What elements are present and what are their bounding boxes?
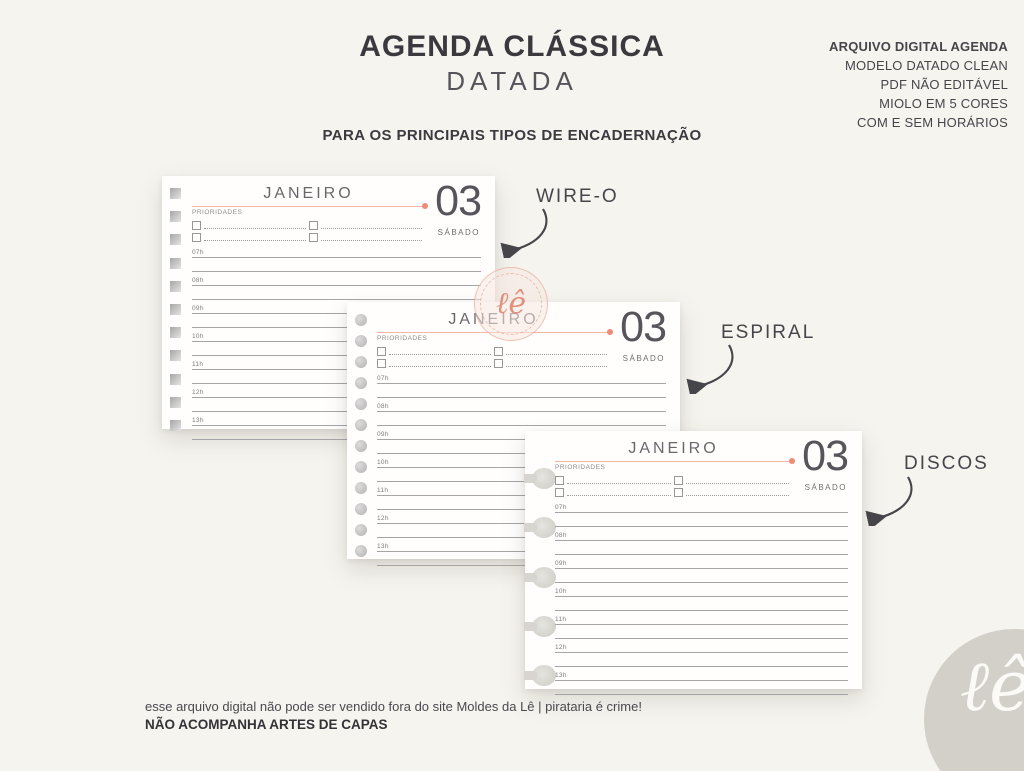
hour-line: 13h bbox=[555, 667, 848, 681]
hour-label: 12h bbox=[555, 644, 567, 651]
square-punch-hole-icon bbox=[170, 397, 181, 408]
square-punch-hole-icon bbox=[170, 211, 181, 222]
square-punch-hole-icon bbox=[170, 304, 181, 315]
disc-punch-hole-icon bbox=[532, 567, 556, 588]
circle-punch-hole-icon bbox=[355, 440, 367, 452]
info-lines: MODELO DATADO CLEANPDF NÃO EDITÁVELMIOLO… bbox=[829, 56, 1008, 132]
hour-block: 11h bbox=[555, 611, 848, 639]
dotted-leader bbox=[686, 482, 790, 484]
blank-line bbox=[555, 653, 848, 667]
priorities-row bbox=[192, 230, 425, 242]
hour-label: 10h bbox=[555, 588, 567, 595]
circle-punch-hole-icon bbox=[355, 524, 367, 536]
blank-line bbox=[555, 541, 848, 555]
checkbox-icon bbox=[309, 221, 318, 230]
footer: esse arquivo digital não pode ser vendid… bbox=[145, 699, 642, 732]
promo-page: AGENDA CLÁSSICA DATADA ARQUIVO DIGITAL A… bbox=[0, 0, 1024, 771]
hours-grid: 07h 08h 09h 10h 11h 12h bbox=[555, 499, 848, 695]
circle-punch-hole-icon bbox=[355, 461, 367, 473]
circle-punch-hole-icon bbox=[355, 314, 367, 326]
hour-line: 09h bbox=[555, 555, 848, 569]
hour-line: 07h bbox=[192, 244, 481, 258]
info-line: PDF NÃO EDITÁVEL bbox=[829, 75, 1008, 94]
priorities-row bbox=[555, 473, 792, 485]
circle-punch-hole-icon bbox=[355, 545, 367, 557]
square-punch-hole-icon bbox=[170, 350, 181, 361]
square-punch-hole-icon bbox=[170, 234, 181, 245]
priorities-row bbox=[192, 218, 425, 230]
footer-warning: NÃO ACOMPANHA ARTES DE CAPAS bbox=[145, 717, 642, 732]
weekday-label: SÁBADO bbox=[805, 483, 847, 492]
day-number: 03 bbox=[802, 435, 848, 478]
dotted-leader bbox=[686, 494, 790, 496]
circle-punch-hole-icon bbox=[355, 419, 367, 431]
square-punch-hole-icon bbox=[170, 188, 181, 199]
dotted-leader bbox=[204, 239, 306, 241]
dotted-leader bbox=[567, 494, 671, 496]
dotted-leader bbox=[389, 365, 491, 367]
circle-punch-hole-icon bbox=[355, 503, 367, 515]
curved-arrow-icon bbox=[495, 206, 553, 258]
blank-line bbox=[555, 569, 848, 583]
hour-line: 07h bbox=[555, 499, 848, 513]
hour-label: 13h bbox=[377, 543, 389, 550]
square-punch-hole-icon bbox=[170, 420, 181, 431]
dotted-leader bbox=[321, 227, 423, 229]
hour-block: 07h bbox=[377, 370, 666, 398]
hour-label: 12h bbox=[377, 515, 389, 522]
disc-punch-hole-icon bbox=[532, 468, 556, 489]
hour-label: 11h bbox=[555, 616, 566, 623]
tagline: PARA OS PRINCIPAIS TIPOS DE ENCADERNAÇÃO bbox=[0, 127, 1024, 144]
hour-block: 07h bbox=[192, 244, 481, 272]
hour-label: 11h bbox=[377, 487, 388, 494]
watermark-stamp-icon: ℓê bbox=[474, 267, 548, 341]
checkbox-icon bbox=[494, 359, 503, 368]
circle-punch-hole-icon bbox=[355, 398, 367, 410]
priorities-row bbox=[377, 356, 610, 368]
priorities-rows bbox=[377, 344, 610, 368]
brand-logo-script: ℓê bbox=[960, 651, 1024, 721]
hour-label: 09h bbox=[192, 305, 204, 312]
info-title: ARQUIVO DIGITAL AGENDA bbox=[829, 37, 1008, 56]
checkbox-icon bbox=[309, 233, 318, 242]
priorities-rows bbox=[192, 218, 425, 242]
checkbox-icon bbox=[674, 476, 683, 485]
blank-line bbox=[555, 597, 848, 611]
watermark-script: ℓê bbox=[496, 289, 526, 319]
accent-rule bbox=[555, 461, 792, 462]
binding-label-discos: DISCOS bbox=[904, 453, 989, 475]
hour-line: 07h bbox=[377, 370, 666, 384]
checkbox-icon bbox=[494, 347, 503, 356]
hour-label: 09h bbox=[555, 560, 567, 567]
blank-line bbox=[377, 412, 666, 426]
hour-block: 08h bbox=[377, 398, 666, 426]
hour-label: 07h bbox=[192, 249, 204, 256]
dotted-leader bbox=[506, 365, 608, 367]
binding-label-wireo: WIRE-O bbox=[536, 186, 619, 208]
curved-arrow-icon bbox=[860, 474, 918, 526]
checkbox-icon bbox=[377, 359, 386, 368]
dotted-leader bbox=[204, 227, 306, 229]
circle-punch-hole-icon bbox=[355, 335, 367, 347]
hour-label: 12h bbox=[192, 389, 204, 396]
hour-line: 10h bbox=[555, 583, 848, 597]
blank-line bbox=[555, 513, 848, 527]
info-line: MODELO DATADO CLEAN bbox=[829, 56, 1008, 75]
blank-line bbox=[192, 258, 481, 272]
dotted-leader bbox=[389, 353, 491, 355]
hour-label: 09h bbox=[377, 431, 389, 438]
priorities-rows bbox=[555, 473, 792, 497]
disc-punch-hole-icon bbox=[532, 665, 556, 686]
square-punch-hole-icon bbox=[170, 281, 181, 292]
square-punch-hole-icon bbox=[170, 258, 181, 269]
hour-block: 08h bbox=[192, 272, 481, 300]
hour-label: 08h bbox=[555, 532, 567, 539]
hour-line: 11h bbox=[555, 611, 848, 625]
hour-line: 12h bbox=[555, 639, 848, 653]
weekday-label: SÁBADO bbox=[438, 228, 480, 237]
checkbox-icon bbox=[377, 347, 386, 356]
hour-block: 12h bbox=[555, 639, 848, 667]
dotted-leader bbox=[506, 353, 608, 355]
checkbox-icon bbox=[192, 233, 201, 242]
blank-line bbox=[555, 625, 848, 639]
hour-label: 08h bbox=[377, 403, 389, 410]
disc-punch-hole-icon bbox=[532, 616, 556, 637]
hour-block: 10h bbox=[555, 583, 848, 611]
planner-page: JANEIRO 03 SÁBADO PRIORIDADES 07h 08h bbox=[555, 431, 848, 689]
circle-punch-hole-icon bbox=[355, 356, 367, 368]
checkbox-icon bbox=[555, 476, 564, 485]
square-punch-hole-icon bbox=[170, 327, 181, 338]
accent-rule bbox=[192, 206, 425, 207]
hour-label: 13h bbox=[555, 672, 567, 679]
checkbox-icon bbox=[192, 221, 201, 230]
hour-line: 08h bbox=[192, 272, 481, 286]
product-info-block: ARQUIVO DIGITAL AGENDA MODELO DATADO CLE… bbox=[829, 37, 1008, 132]
hour-label: 10h bbox=[192, 333, 204, 340]
hour-label: 13h bbox=[192, 417, 204, 424]
day-number: 03 bbox=[620, 306, 666, 349]
planner-card-discos: JANEIRO 03 SÁBADO PRIORIDADES 07h 08h bbox=[525, 431, 862, 689]
blank-line bbox=[555, 681, 848, 695]
hour-label: 11h bbox=[192, 361, 203, 368]
hour-label: 08h bbox=[192, 277, 204, 284]
hour-block: 09h bbox=[555, 555, 848, 583]
priorities-label: PRIORIDADES bbox=[192, 209, 242, 216]
priorities-label: PRIORIDADES bbox=[555, 464, 605, 471]
checkbox-icon bbox=[555, 488, 564, 497]
hour-line: 08h bbox=[377, 398, 666, 412]
circle-punch-hole-icon bbox=[355, 377, 367, 389]
info-line: MIOLO EM 5 CORES bbox=[829, 94, 1008, 113]
footer-disclaimer: esse arquivo digital não pode ser vendid… bbox=[145, 699, 642, 714]
checkbox-icon bbox=[674, 488, 683, 497]
hour-label: 07h bbox=[377, 375, 389, 382]
hour-block: 08h bbox=[555, 527, 848, 555]
month-title: JANEIRO bbox=[555, 440, 792, 458]
blank-line bbox=[192, 286, 481, 300]
priorities-row bbox=[555, 485, 792, 497]
circle-punch-hole-icon bbox=[355, 482, 367, 494]
priorities-label: PRIORIDADES bbox=[377, 335, 427, 342]
hour-label: 07h bbox=[555, 504, 567, 511]
dotted-leader bbox=[321, 239, 423, 241]
blank-line bbox=[377, 384, 666, 398]
hour-block: 07h bbox=[555, 499, 848, 527]
square-punch-hole-icon bbox=[170, 374, 181, 385]
hour-label: 10h bbox=[377, 459, 389, 466]
hour-block: 13h bbox=[555, 667, 848, 695]
month-title: JANEIRO bbox=[192, 185, 425, 203]
curved-arrow-icon bbox=[681, 342, 739, 394]
priorities-row bbox=[377, 344, 610, 356]
day-number: 03 bbox=[435, 180, 481, 223]
weekday-label: SÁBADO bbox=[623, 354, 665, 363]
dotted-leader bbox=[567, 482, 671, 484]
hour-line: 08h bbox=[555, 527, 848, 541]
brand-logo-icon: ℓê bbox=[924, 629, 1024, 771]
disc-punch-hole-icon bbox=[532, 517, 556, 538]
binding-label-espiral: ESPIRAL bbox=[721, 322, 815, 344]
